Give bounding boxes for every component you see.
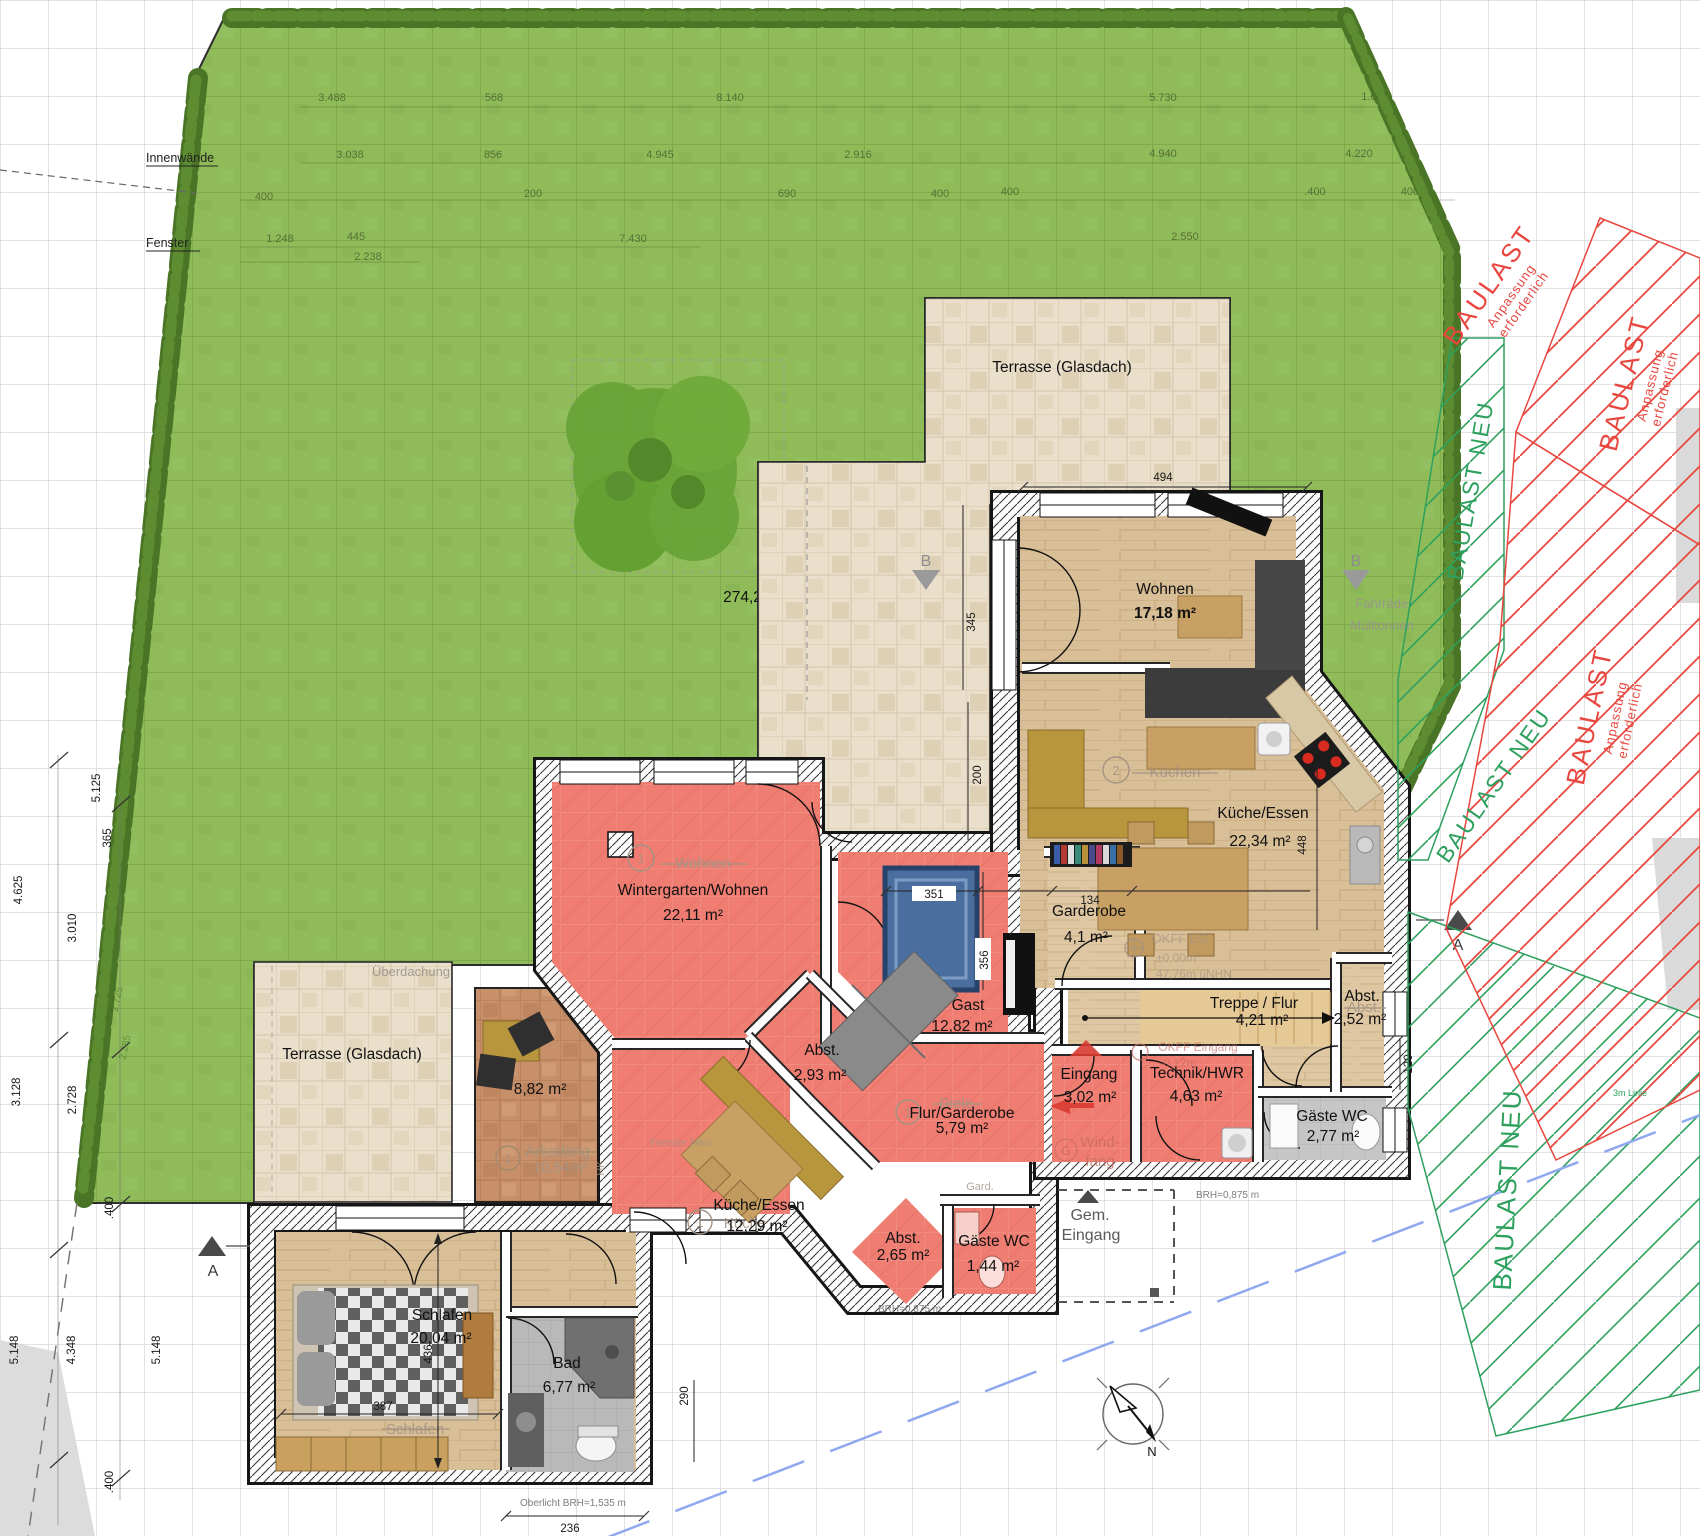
svg-text:5.148: 5.148 (151, 1336, 163, 1365)
svg-text:1: 1 (696, 1215, 703, 1230)
svg-text:3.010: 3.010 (67, 914, 79, 943)
svg-text:2,93 m²: 2,93 m² (794, 1067, 847, 1084)
svg-text:445: 445 (347, 231, 365, 243)
room-label-eingang: Eingang (1061, 1066, 1118, 1083)
svg-text:2,65 m²: 2,65 m² (877, 1247, 930, 1264)
svg-text:17,18 m²: 17,18 m² (1134, 605, 1196, 622)
svg-text:10,54m²: 10,54m² (532, 1159, 587, 1176)
room-label-abst-gast: Abst. (804, 1042, 839, 1059)
svg-text:G: G (1061, 1144, 1070, 1158)
terrasse-west-label: Terrasse (Glasdach) (282, 1046, 422, 1063)
svg-text:1,44 m²: 1,44 m² (967, 1258, 1020, 1275)
svg-text:12,29 m²: 12,29 m² (726, 1218, 787, 1235)
svg-text:436: 436 (423, 1344, 435, 1363)
tree (566, 376, 750, 572)
svg-text:1: 1 (637, 851, 644, 866)
svg-text:345: 345 (966, 612, 978, 631)
svg-text:8.140: 8.140 (716, 92, 744, 104)
svg-text:12,82 m²: 12,82 m² (931, 1018, 992, 1035)
svg-text:3m Linie: 3m Linie (1613, 1088, 1647, 1098)
room-label-kueche-elw: Küche/Essen (713, 1197, 804, 1214)
svg-text:4,21 m²: 4,21 m² (1236, 1012, 1289, 1029)
terrasse-west (254, 962, 452, 1202)
svg-text:856: 856 (484, 149, 502, 161)
svg-text:fang: fang (1085, 1153, 1114, 1170)
svg-text:400: 400 (931, 188, 949, 200)
svg-text:2: 2 (1112, 763, 1119, 778)
svg-text:2,52 m²: 2,52 m² (1334, 1011, 1387, 1028)
room-label-abst-treppe: Abst. (1344, 988, 1379, 1005)
room-label-treppe: Treppe / Flur (1210, 995, 1298, 1012)
svg-text:400: 400 (1001, 186, 1019, 198)
svg-text:2.916: 2.916 (844, 149, 872, 161)
floorplan-canvas: 3.488 568 8.140 5.730 1.670 3.038 856 4.… (0, 0, 1700, 1536)
room-label-schlafen: Schlafen (412, 1307, 472, 1324)
svg-text:Gem.: Gem. (1070, 1207, 1109, 1224)
svg-text:690: 690 (778, 188, 796, 200)
terrasse-nord-label: Terrasse (Glasdach) (992, 359, 1132, 376)
svg-text:22,34 m²: 22,34 m² (1229, 833, 1290, 850)
room-label-wc-elw: Gäste WC (958, 1233, 1029, 1250)
svg-text:1.248: 1.248 (266, 233, 294, 245)
svg-text:Fahrräder: Fahrräder (1355, 596, 1413, 611)
svg-text:5.730: 5.730 (1149, 92, 1177, 104)
svg-text:494: 494 (1153, 472, 1173, 484)
room-label-gast: Gast (952, 997, 985, 1014)
svg-text:7.430: 7.430 (619, 233, 647, 245)
legend-fenster: Fenster (146, 236, 188, 250)
svg-text:47,76m üNHN: 47,76m üNHN (1156, 967, 1232, 981)
svg-text:2.238: 2.238 (354, 251, 382, 263)
svg-text:22,11 m²: 22,11 m² (663, 907, 723, 924)
svg-text:OKFF Eingang: OKFF Eingang (1158, 1040, 1237, 1054)
svg-text:400: 400 (255, 191, 273, 203)
svg-text:448: 448 (1297, 835, 1309, 854)
svg-text:568: 568 (485, 92, 503, 104)
svg-text:2,77 m²: 2,77 m² (1307, 1128, 1360, 1145)
svg-text:5.125: 5.125 (91, 774, 103, 803)
svg-text:4.945: 4.945 (646, 149, 674, 161)
svg-text:5.148: 5.148 (9, 1336, 21, 1365)
svg-text:236: 236 (560, 1523, 579, 1535)
svg-text:2.550: 2.550 (1171, 231, 1199, 243)
svg-text:4.348: 4.348 (66, 1336, 78, 1365)
svg-text:Oberlicht BRH=1,535 m: Oberlicht BRH=1,535 m (520, 1498, 626, 1509)
room-label-abst-elw: Abst. (885, 1230, 920, 1247)
room-label-wintergarten: Wintergarten/Wohnen (618, 882, 769, 899)
svg-text:.400: .400 (1304, 186, 1325, 198)
arkade-area-label: 8,82 m² (514, 1081, 567, 1098)
room-label-kueche-og: Küche/Essen (1217, 805, 1308, 822)
svg-text:OKFF EG: OKFF EG (1151, 931, 1208, 946)
svg-text:B: B (1351, 553, 1362, 570)
svg-text:200: 200 (972, 765, 984, 784)
svg-text:Wind-: Wind- (1080, 1134, 1119, 1151)
svg-text:20,04 m²: 20,04 m² (410, 1330, 471, 1347)
svg-text:A: A (208, 1263, 219, 1280)
svg-text:HK: HK (595, 1160, 607, 1176)
svg-text:N: N (1147, 1444, 1156, 1459)
ueberdachung-label: Überdachung (372, 964, 450, 979)
svg-text:351: 351 (924, 889, 943, 901)
svg-text:4.625: 4.625 (13, 876, 25, 905)
svg-text:3,02 m²: 3,02 m² (1064, 1089, 1117, 1106)
svg-text:.400: .400 (104, 1197, 116, 1219)
room-label-bad: Bad (553, 1355, 581, 1372)
svg-text:134: 134 (1080, 895, 1100, 907)
svg-text:6,77 m²: 6,77 m² (543, 1379, 596, 1396)
room-label-wc-og: Gäste WC (1296, 1108, 1367, 1125)
svg-text:.400: .400 (104, 1471, 116, 1493)
svg-text:200: 200 (524, 188, 542, 200)
svg-text:387: 387 (373, 1401, 392, 1413)
svg-text:3.488: 3.488 (318, 92, 346, 104)
svg-text:BRH=0,875 m: BRH=0,875 m (878, 1304, 941, 1315)
svg-text:Fenster Neu: Fenster Neu (650, 1137, 711, 1149)
svg-text:4,1 m²: 4,1 m² (1064, 929, 1108, 946)
svg-text:290: 290 (679, 1386, 691, 1405)
svg-text:Eingang: Eingang (1062, 1227, 1121, 1244)
svg-text:BRH=0,875 m: BRH=0,875 m (1196, 1190, 1259, 1201)
room-label-wohnen: Wohnen (1136, 581, 1193, 598)
room-label-technik: Technik/HWR (1150, 1065, 1244, 1082)
svg-text:4.940: 4.940 (1149, 148, 1177, 160)
svg-text:5,79 m²: 5,79 m² (936, 1120, 989, 1137)
svg-text:2.728: 2.728 (67, 1086, 79, 1115)
svg-text:365: 365 (102, 828, 114, 847)
svg-text:1: 1 (504, 1151, 511, 1166)
svg-text:Gard.: Gard. (966, 1181, 994, 1193)
svg-text:3.038: 3.038 (336, 149, 364, 161)
svg-text:4.220: 4.220 (1345, 148, 1373, 160)
svg-text:B: B (921, 553, 932, 570)
svg-text:±0,00m: ±0,00m (1156, 951, 1196, 965)
svg-text:4,63 m²: 4,63 m² (1170, 1088, 1223, 1105)
svg-text:Mülltonnen: Mülltonnen (1350, 618, 1414, 633)
legend-innenwaende: Innenwände (146, 151, 214, 165)
svg-text:3.128: 3.128 (11, 1078, 23, 1107)
svg-text:356: 356 (979, 950, 991, 969)
